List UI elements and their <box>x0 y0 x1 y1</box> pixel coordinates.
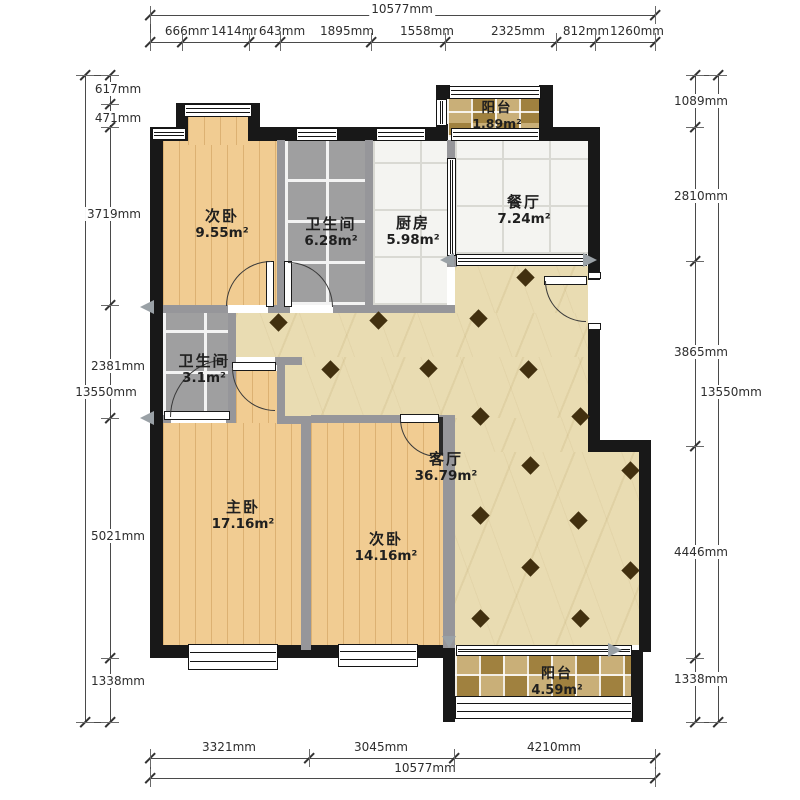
dim-top-7: 1260mm <box>608 24 666 38</box>
window-top-left <box>152 128 186 140</box>
dim-top-0: 666mm <box>163 24 213 38</box>
room-area: 4.59m² <box>507 683 607 699</box>
room-label-master: 主卧 17.16m² <box>193 498 293 532</box>
dimension-ext <box>280 33 281 51</box>
dim-bottom-1: 3045mm <box>352 740 410 754</box>
dimension-ext <box>76 722 94 723</box>
window-bedroom2 <box>338 644 418 667</box>
room-name: 客厅 <box>396 450 496 468</box>
dimension-ext <box>150 6 151 24</box>
dimension-ext <box>655 769 656 787</box>
dim-line-bottom-inner <box>150 758 655 759</box>
dim-right-0: 1089mm <box>672 94 730 108</box>
dimension-ext <box>101 418 119 419</box>
dimension-ext <box>150 749 151 767</box>
room-name: 主卧 <box>193 498 293 516</box>
dim-right-1: 2810mm <box>672 189 730 203</box>
dim-top-5: 2325mm <box>489 24 547 38</box>
wall-balcony-bottom-left <box>443 648 455 722</box>
arrow-left-icon <box>140 300 154 314</box>
dim-left-3: 2381mm <box>89 359 147 373</box>
dim-left-1: 471mm <box>93 111 143 125</box>
dim-left-total: 13550mm <box>73 385 139 399</box>
arrow-left-icon <box>140 411 154 425</box>
bedroom-top-bay-floor <box>188 115 248 145</box>
dimension-ext <box>309 749 310 767</box>
dimension-ext <box>655 33 656 51</box>
room-name: 餐厅 <box>474 193 574 211</box>
dimension-ext <box>101 658 119 659</box>
dimension-ext <box>556 33 557 51</box>
dimension-ext <box>182 33 183 51</box>
dimension-ext <box>101 75 119 76</box>
dimension-ext <box>686 127 704 128</box>
dim-line-bottom-outer <box>150 778 655 779</box>
arrow-left-icon <box>440 253 454 267</box>
dimension-ext <box>686 75 704 76</box>
window-bay-top <box>184 104 252 117</box>
dimension-ext <box>101 305 119 306</box>
room-name: 阳台 <box>447 100 547 116</box>
window-master <box>188 644 278 670</box>
window-kitchen <box>376 128 426 141</box>
dimension-ext <box>249 33 250 51</box>
dim-left-4: 5021mm <box>89 529 147 543</box>
room-label-bath-small: 卫生间 3.1m² <box>156 352 252 386</box>
wall-right-mid <box>588 323 600 446</box>
window-balcony-top <box>449 86 541 99</box>
wall-right-step <box>588 440 651 452</box>
room-area: 14.16m² <box>336 548 436 564</box>
room-label-living: 客厅 36.79m² <box>396 450 496 484</box>
wall-right-lower <box>639 452 651 652</box>
living-floor <box>455 418 588 452</box>
dimension-ext <box>655 6 656 24</box>
dim-line-right-inner <box>695 75 696 722</box>
window-bath-main <box>296 128 338 141</box>
dimension-ext <box>101 127 119 128</box>
dim-right-3: 4446mm <box>672 545 730 559</box>
dim-bottom-0: 3321mm <box>200 740 258 754</box>
room-area: 17.16m² <box>193 516 293 532</box>
dimension-ext <box>445 33 446 51</box>
dim-line-top-inner <box>150 42 655 43</box>
entry-door-jamb <box>588 272 601 279</box>
dimension-ext <box>709 75 727 76</box>
room-area: 5.98m² <box>363 232 463 248</box>
dim-top-6: 812mm <box>561 24 611 38</box>
room-area: 9.55m² <box>170 225 274 241</box>
room-name: 次卧 <box>336 530 436 548</box>
dim-left-0: 617mm <box>93 82 143 96</box>
wall-column <box>277 363 285 420</box>
floor-plan: 次卧 9.55m² 卫生间 6.28m² 厨房 5.98m² 餐厅 7.24m²… <box>0 0 800 800</box>
room-area: 7.24m² <box>474 211 574 227</box>
arrow-down-icon <box>442 636 456 648</box>
room-label-balcony-bottom: 阳台 4.59m² <box>507 666 607 698</box>
dim-right-4: 1338mm <box>672 672 730 686</box>
dim-top-total: 10577mm <box>369 2 435 16</box>
wall-left <box>150 127 163 658</box>
room-name: 阳台 <box>507 666 607 683</box>
dim-left-5: 1338mm <box>89 674 147 688</box>
wall-kitchen-dining <box>447 140 455 160</box>
room-name: 卫生间 <box>156 352 252 370</box>
dim-right-total: 13550mm <box>698 385 764 399</box>
room-name: 次卧 <box>170 207 274 225</box>
dim-bottom-total: 10577mm <box>392 761 458 775</box>
dimension-ext <box>101 104 119 105</box>
room-name: 厨房 <box>363 214 463 232</box>
dimension-ext <box>709 722 727 723</box>
dim-left-2: 3719mm <box>85 207 143 221</box>
room-label-dining: 餐厅 7.24m² <box>474 193 574 227</box>
room-area: 36.79m² <box>396 468 496 484</box>
wall-master-bedroom2 <box>301 416 311 650</box>
entry-door-jamb <box>588 323 601 330</box>
dim-right-2: 3865mm <box>672 345 730 359</box>
dimension-ext <box>101 722 119 723</box>
wall-hall-north <box>333 305 455 313</box>
dim-top-3: 1895mm <box>318 24 376 38</box>
dimension-ext <box>655 749 656 767</box>
arrow-right-icon <box>583 253 597 267</box>
room-label-bedroom-top: 次卧 9.55m² <box>170 207 274 241</box>
dimension-ext <box>686 261 704 262</box>
room-label-balcony-top: 阳台 1.89m² <box>447 100 547 131</box>
wall-balcony-top-left <box>436 85 450 99</box>
window-balcony-side <box>436 99 447 126</box>
dim-top-4: 1558mm <box>398 24 456 38</box>
room-area: 3.1m² <box>156 370 252 386</box>
dimension-ext <box>454 749 455 767</box>
dim-bottom-2: 4210mm <box>525 740 583 754</box>
slider-living-balcony <box>456 645 632 656</box>
dimension-ext <box>686 446 704 447</box>
slider-dining-living <box>456 254 587 266</box>
dimension-ext <box>371 33 372 51</box>
room-label-bedroom2: 次卧 14.16m² <box>336 530 436 564</box>
room-area: 1.89m² <box>447 116 547 131</box>
dim-top-2: 643mm <box>257 24 307 38</box>
dimension-ext <box>595 33 596 51</box>
room-label-kitchen: 厨房 5.98m² <box>363 214 463 248</box>
arrow-right-icon <box>608 643 622 657</box>
master-floor <box>163 423 301 650</box>
window-balcony-bottom <box>455 696 633 719</box>
living-floor <box>236 313 588 357</box>
dimension-ext <box>150 769 151 787</box>
dimension-ext <box>686 658 704 659</box>
dimension-ext <box>76 75 94 76</box>
wall-bedroom2-north <box>311 415 400 423</box>
wall-hall-north <box>163 305 228 313</box>
dimension-ext <box>150 33 151 51</box>
dimension-ext <box>686 722 704 723</box>
